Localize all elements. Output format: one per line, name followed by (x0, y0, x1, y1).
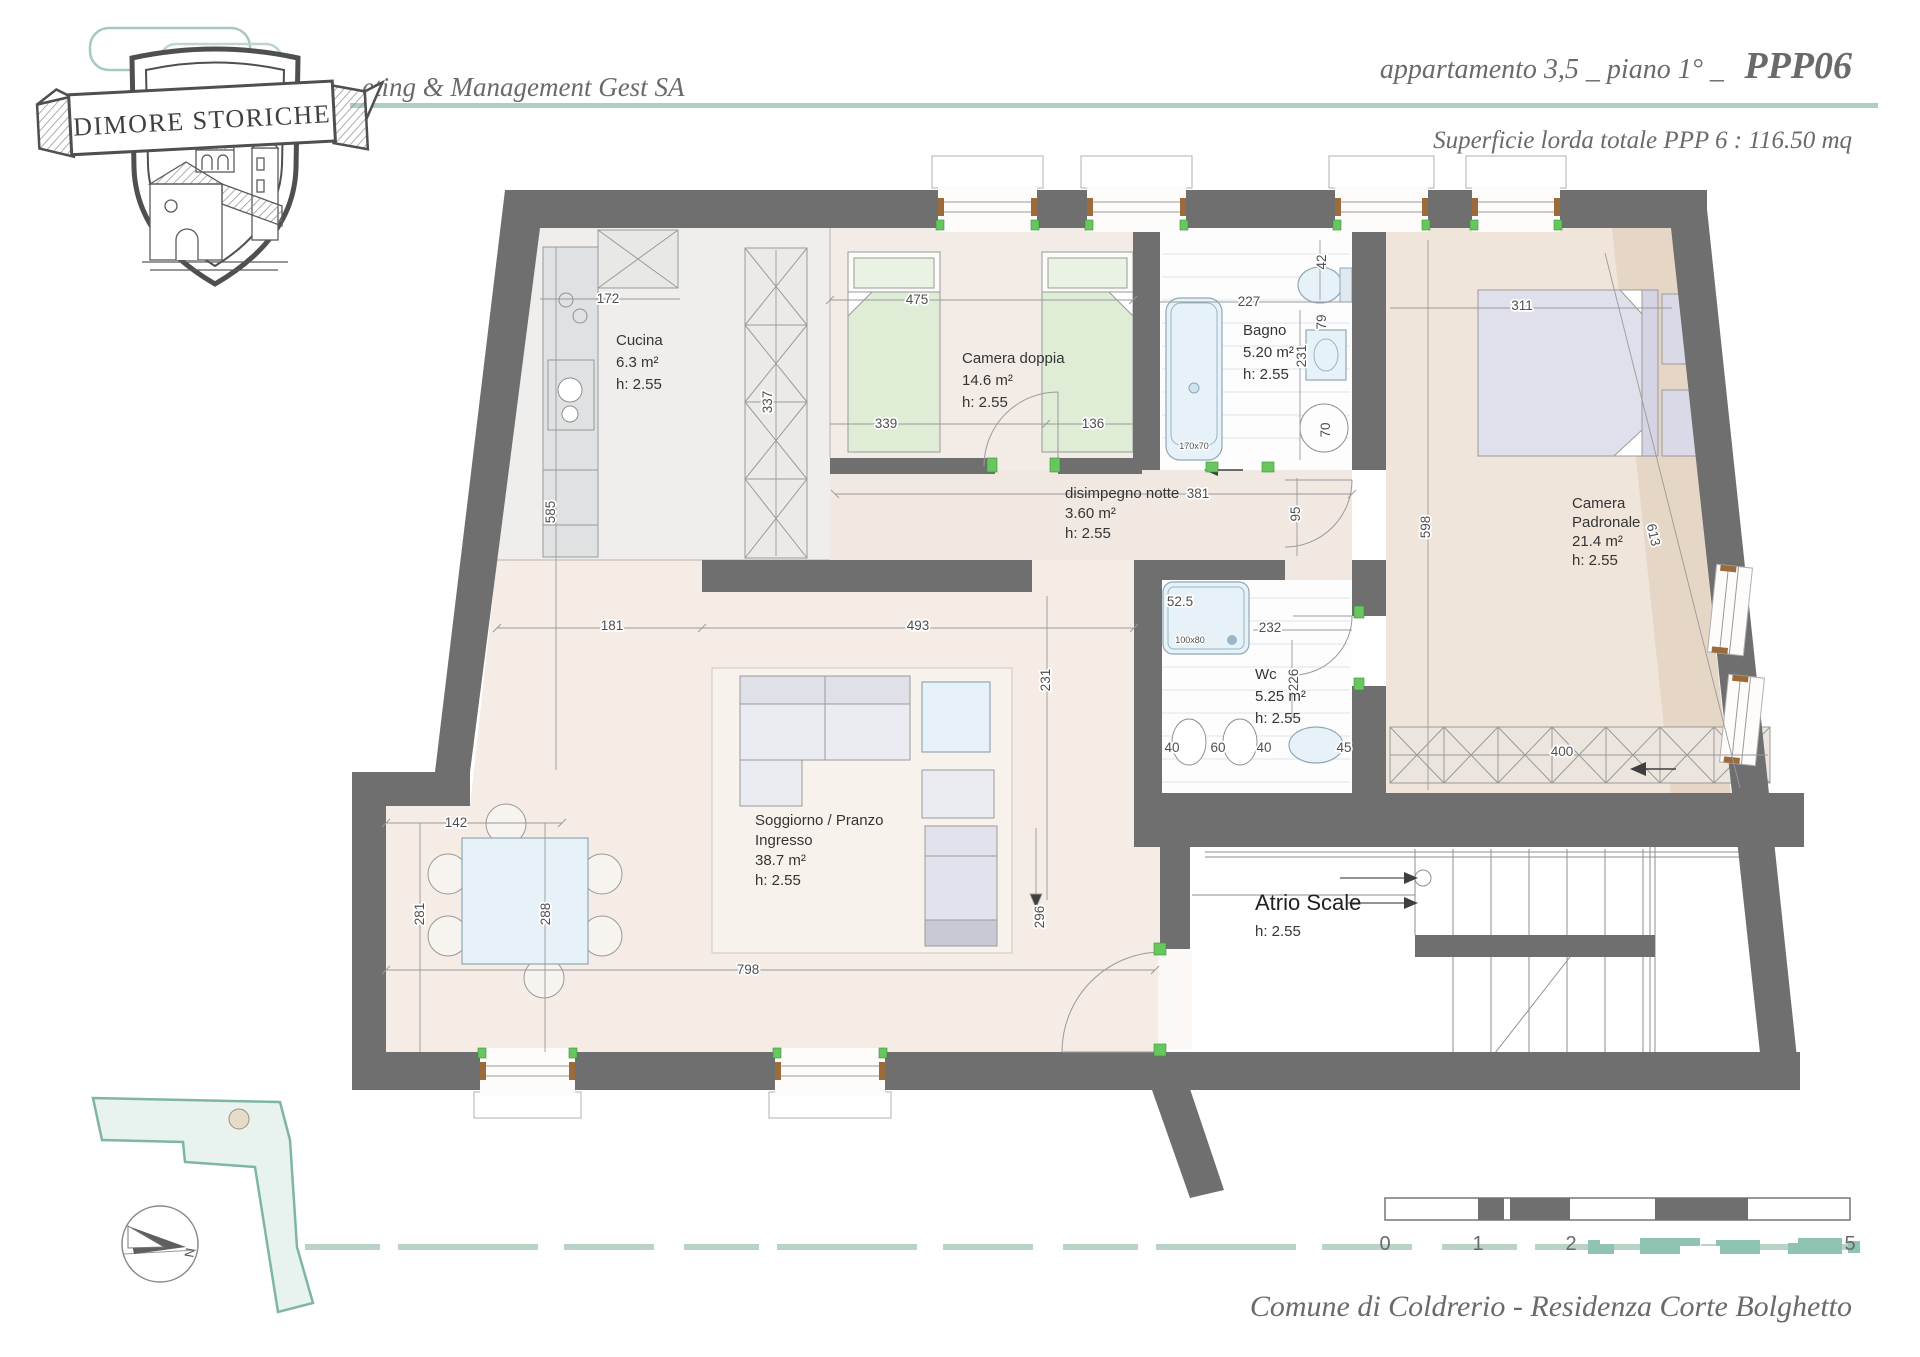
dim-label: 400 (1551, 744, 1574, 759)
window (1081, 156, 1192, 232)
dim-label: 142 (445, 815, 468, 830)
dim-label: 598 (1418, 516, 1433, 539)
dim-label: 45 (1336, 740, 1351, 755)
room-name: Cucina (616, 332, 663, 349)
sheet-title: appartamento 3,5 _ piano 1° _ PPP06 (1380, 45, 1852, 87)
dim-label: 79 (1314, 314, 1329, 329)
site-key-plan (93, 1098, 313, 1312)
dim-label: 337 (760, 391, 775, 414)
scale-label: 1 (1472, 1233, 1483, 1255)
room-name: Camera doppia (962, 350, 1065, 367)
dim-label: 381 (1187, 486, 1210, 501)
dim-label: 231 (1294, 345, 1309, 368)
room-name: Atrio Scale (1255, 890, 1361, 915)
dim-label: 311 (1511, 298, 1533, 313)
window (769, 1048, 891, 1118)
dim-label: 493 (907, 618, 930, 633)
room-name: Wc (1255, 666, 1277, 683)
obscured-watermark-fragments (1588, 1232, 1860, 1255)
dim-label: 227 (1238, 294, 1261, 309)
dim-label: 231 (1038, 669, 1053, 692)
room-area: 6.3 m² (616, 354, 659, 371)
footer: 0 1 2 5 N Comune di Coldrerio - Residenz… (93, 1098, 1860, 1323)
drawing-sheet: eting & Management Gest SA appartamento … (0, 0, 1920, 1357)
dim-label: 52.5 (1167, 594, 1193, 609)
dim-label: 585 (543, 501, 558, 524)
project-location: Comune di Coldrerio - Residenza Corte Bo… (1250, 1290, 1852, 1323)
room-name: Padronale (1572, 514, 1640, 531)
window (1466, 156, 1566, 232)
room-height: h: 2.55 (616, 376, 662, 393)
dining-table (462, 838, 588, 964)
window (932, 156, 1043, 232)
dim-label: 95 (1288, 506, 1303, 521)
room-area: 3.60 m² (1065, 505, 1116, 522)
room-area: 14.6 m² (962, 372, 1013, 389)
room-height: h: 2.55 (1255, 923, 1301, 940)
dim-label: 170x70 (1179, 441, 1209, 451)
room-height: h: 2.55 (962, 394, 1008, 411)
dim-label: 475 (906, 292, 929, 307)
room-height: h: 2.55 (1255, 710, 1301, 727)
logo: DIMORE STORICHE (36, 28, 386, 284)
dim-label: 40 (1256, 740, 1271, 755)
north-compass: N (122, 1206, 198, 1282)
window (1329, 156, 1434, 232)
room-height: h: 2.55 (1065, 525, 1111, 542)
sheet-code: PPP06 (1743, 45, 1852, 87)
dim-label: 42 (1314, 254, 1329, 269)
room-name: Bagno (1243, 322, 1286, 339)
scale-label: 2 (1565, 1233, 1576, 1255)
watermark-text: eting & Management Gest SA (362, 72, 685, 102)
dim-label: 70 (1318, 422, 1333, 437)
room-name: disimpegno notte (1065, 485, 1179, 502)
room-height: h: 2.55 (1243, 366, 1289, 383)
scale-label: 0 (1379, 1233, 1390, 1255)
window (474, 1048, 581, 1118)
room-name: Soggiorno / Pranzo (755, 812, 883, 829)
room-height: h: 2.55 (1572, 552, 1618, 569)
header-divider (350, 103, 1878, 108)
room-area: 38.7 m² (755, 852, 806, 869)
dim-label: 136 (1082, 416, 1105, 431)
sheet-subtitle: Superficie lorda totale PPP 6 : 116.50 m… (1433, 127, 1852, 154)
entry-door-gap (1158, 949, 1192, 1049)
sheet-title-text: appartamento 3,5 _ piano 1° _ (1380, 54, 1725, 85)
room-area: 5.20 m² (1243, 344, 1294, 361)
room-name: Camera (1572, 495, 1626, 512)
dim-label: 281 (412, 903, 427, 926)
dim-label: 798 (737, 962, 760, 977)
room-area: 21.4 m² (1572, 533, 1623, 550)
dim-label: 339 (875, 416, 898, 431)
floor-plan-canvas: eting & Management Gest SA appartamento … (0, 0, 1920, 1357)
dim-label: 100x80 (1175, 635, 1205, 645)
dim-label: 181 (601, 618, 624, 633)
header: eting & Management Gest SA appartamento … (350, 45, 1878, 154)
room-name: Ingresso (755, 832, 813, 849)
dim-label: 172 (597, 291, 620, 306)
scale-label: 5 (1844, 1233, 1855, 1255)
dim-label: 232 (1259, 620, 1282, 635)
dim-label: 296 (1032, 906, 1047, 929)
dim-label: 288 (538, 903, 553, 926)
room-height: h: 2.55 (755, 872, 801, 889)
room-area: 5.25 m² (1255, 688, 1306, 705)
dim-label: 40 (1164, 740, 1179, 755)
dim-label: 60 (1210, 740, 1225, 755)
